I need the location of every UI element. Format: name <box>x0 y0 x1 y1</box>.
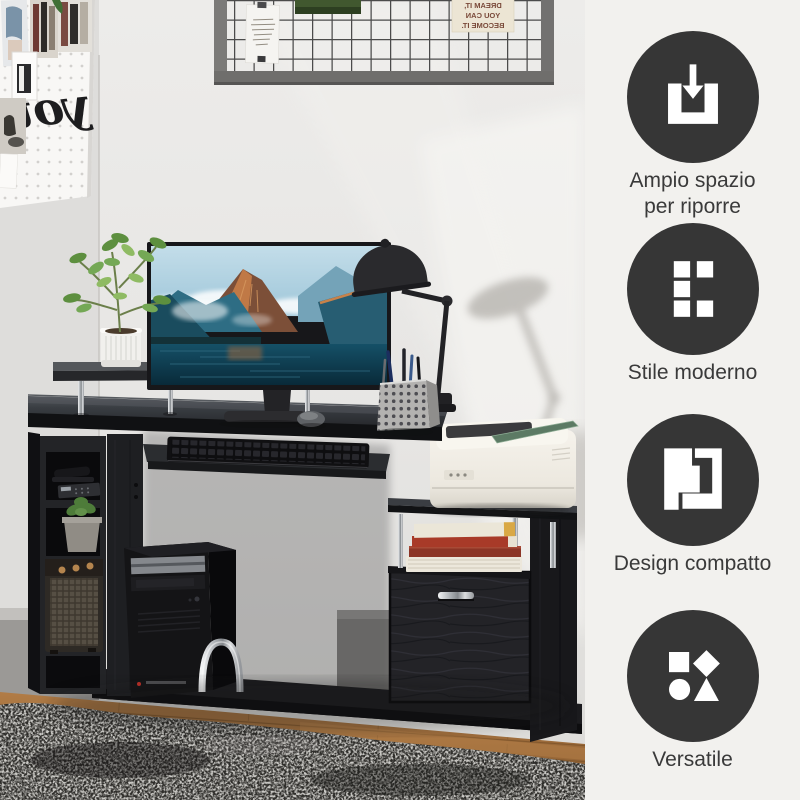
feature-sidebar: Ampio spazio per riporre Stile moderno <box>585 0 800 800</box>
quote-line: DREAM IT, <box>464 1 502 10</box>
feature-badge <box>627 610 759 742</box>
feature-item-compact: Design compatto <box>585 414 800 577</box>
feature-label: Versatile <box>652 747 733 773</box>
quote-line: YOU CAN <box>466 11 501 20</box>
pc-tower <box>124 542 240 698</box>
note-card <box>245 2 279 64</box>
left-shelf-unit <box>28 432 106 694</box>
room-photo: IF YOU CAN DREAM IT, YOU CAN BECOME IT. <box>0 0 585 800</box>
quote-line: BECOME IT. <box>462 21 505 30</box>
plant-pot <box>100 328 142 367</box>
printer <box>430 418 578 516</box>
speaker <box>45 559 103 654</box>
pegboard-photo <box>0 98 26 154</box>
pinned-photo <box>295 0 361 14</box>
feature-item-storage: Ampio spazio per riporre <box>585 31 800 220</box>
drawer-handle <box>438 592 474 599</box>
books-stack <box>406 522 522 572</box>
monitor-screen-wallpaper <box>148 246 392 385</box>
memo-grid-board: IF YOU CAN DREAM IT, YOU CAN BECOME IT. <box>214 0 554 85</box>
feature-label: Stile moderno <box>628 360 758 386</box>
compact-design-icon <box>645 432 741 528</box>
pegboard: you <box>0 0 95 208</box>
feature-label: Ampio spazio per riporre <box>618 168 768 220</box>
quote-card: IF YOU CAN DREAM IT, YOU CAN BECOME IT. <box>452 0 514 32</box>
versatile-shapes-icon <box>645 628 741 724</box>
modern-grid-icon <box>645 241 741 337</box>
feature-item-versatile: Versatile <box>585 610 800 773</box>
floor-shadow <box>50 680 570 732</box>
feature-badge <box>627 414 759 546</box>
feature-label: Design compatto <box>614 551 772 577</box>
feature-badge <box>627 223 759 355</box>
product-image: IF YOU CAN DREAM IT, YOU CAN BECOME IT. <box>0 0 800 800</box>
feature-item-style: Stile moderno <box>585 223 800 386</box>
feature-badge <box>627 31 759 163</box>
storage-inbox-icon <box>645 49 741 145</box>
